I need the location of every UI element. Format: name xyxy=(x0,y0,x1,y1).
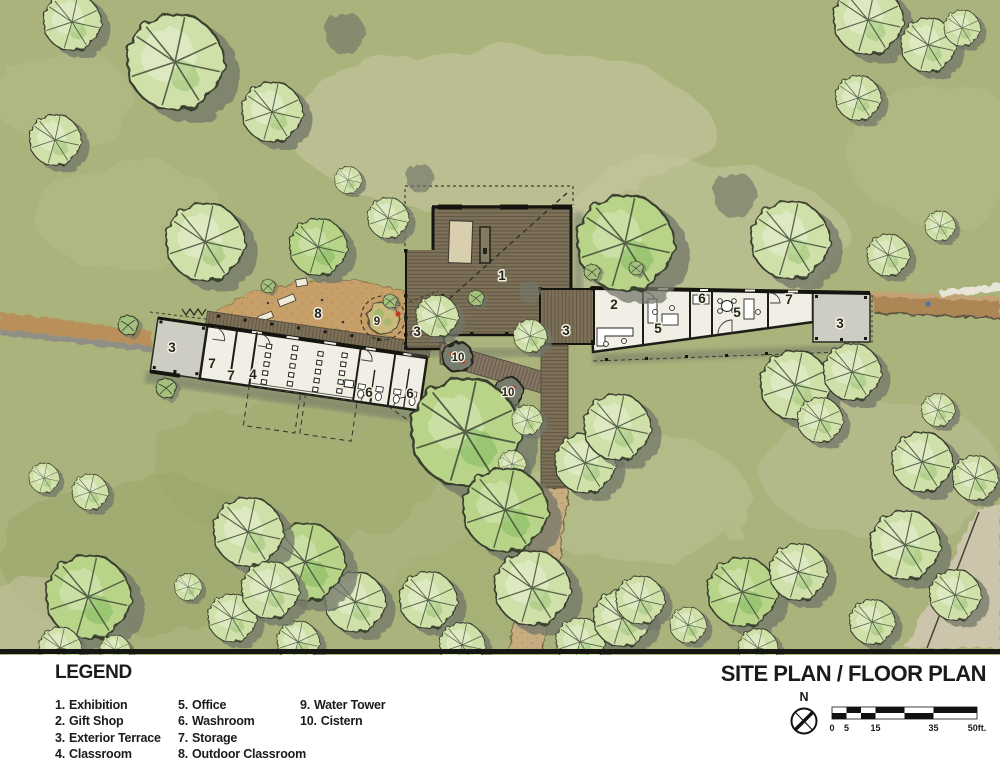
legend-item: 1.Exhibition xyxy=(55,697,161,713)
room-label-water-tower: 9 xyxy=(374,316,380,328)
site-plan-map: 1 2 3 3 3 3 4 5 5 6 6 6 7 7 7 8 9 10 10 xyxy=(0,0,1000,655)
legend-item: 4.Classroom xyxy=(55,746,161,762)
site-plan-page: 1 2 3 3 3 3 4 5 5 6 6 6 7 7 7 8 9 10 10 … xyxy=(0,0,1000,766)
room-label-cistern-2: 10 xyxy=(502,387,515,399)
scale-tick: 50ft. xyxy=(968,723,987,733)
legend-item: 3.Exterior Terrace xyxy=(55,730,161,746)
scale-tick: 0 xyxy=(829,723,834,733)
room-label-classroom: 4 xyxy=(249,367,257,382)
room-label-storage-w2: 7 xyxy=(227,368,235,383)
scale-tick: 5 xyxy=(844,723,849,733)
legend-title: LEGEND xyxy=(55,662,132,684)
room-label-outdoor-classroom: 8 xyxy=(314,306,322,321)
legend-item: 5.Office xyxy=(178,697,306,713)
room-label-gift-shop: 2 xyxy=(610,297,618,312)
room-label-storage-w1: 7 xyxy=(208,356,216,371)
room-label-terrace-west: 3 xyxy=(168,340,176,355)
room-label-office-2: 5 xyxy=(733,305,741,320)
tower-marker xyxy=(395,311,400,316)
legend-item: 10.Cistern xyxy=(300,713,385,729)
scale-tick: 15 xyxy=(870,723,880,733)
room-label-terrace-link: 3 xyxy=(562,323,570,338)
legend-item: 6.Washroom xyxy=(178,713,306,729)
podium xyxy=(344,380,354,388)
room-label-storage-e: 7 xyxy=(785,292,793,307)
legend-column-2: 5.Office 6.Washroom 7.Storage 8.Outdoor … xyxy=(178,697,306,762)
legend-item: 8.Outdoor Classroom xyxy=(178,746,306,762)
shadow-blob xyxy=(713,173,758,218)
legend-column-1: 1.Exhibition 2.Gift Shop 3.Exterior Terr… xyxy=(55,697,161,762)
scale-bar: 0 5 15 35 50ft. xyxy=(828,703,998,741)
plan-title: SITE PLAN / FLOOR PLAN xyxy=(721,661,986,687)
room-label-washroom-w2: 6 xyxy=(406,386,414,401)
west-terrace xyxy=(150,318,207,379)
scale-tick: 35 xyxy=(928,723,938,733)
north-label: N xyxy=(784,691,824,703)
road-marker xyxy=(925,301,930,306)
legend-item: 2.Gift Shop xyxy=(55,713,161,729)
room-label-terrace-deck: 3 xyxy=(413,324,421,339)
exhibit-table xyxy=(448,221,472,264)
legend-column-3: 9.Water Tower 10.Cistern xyxy=(300,697,385,730)
compass-icon xyxy=(786,703,822,739)
room-label-office-1: 5 xyxy=(654,321,662,336)
shadow-blob xyxy=(406,164,435,193)
legend-item: 9.Water Tower xyxy=(300,697,385,713)
room-label-exhibition: 1 xyxy=(498,268,506,283)
room-label-washroom-w1: 6 xyxy=(365,385,373,400)
exhibit-case xyxy=(480,227,490,263)
north-arrow: N xyxy=(784,691,824,744)
legend-item: 7.Storage xyxy=(178,730,306,746)
shadow-blob xyxy=(324,12,366,54)
room-label-cistern-1: 10 xyxy=(452,352,465,364)
room-label-terrace-east: 3 xyxy=(836,316,844,331)
shadow-blob xyxy=(519,281,541,303)
map-border xyxy=(0,649,1000,654)
room-label-washroom-e: 6 xyxy=(698,291,706,306)
bottom-panel: LEGEND 1.Exhibition 2.Gift Shop 3.Exteri… xyxy=(0,655,1000,766)
